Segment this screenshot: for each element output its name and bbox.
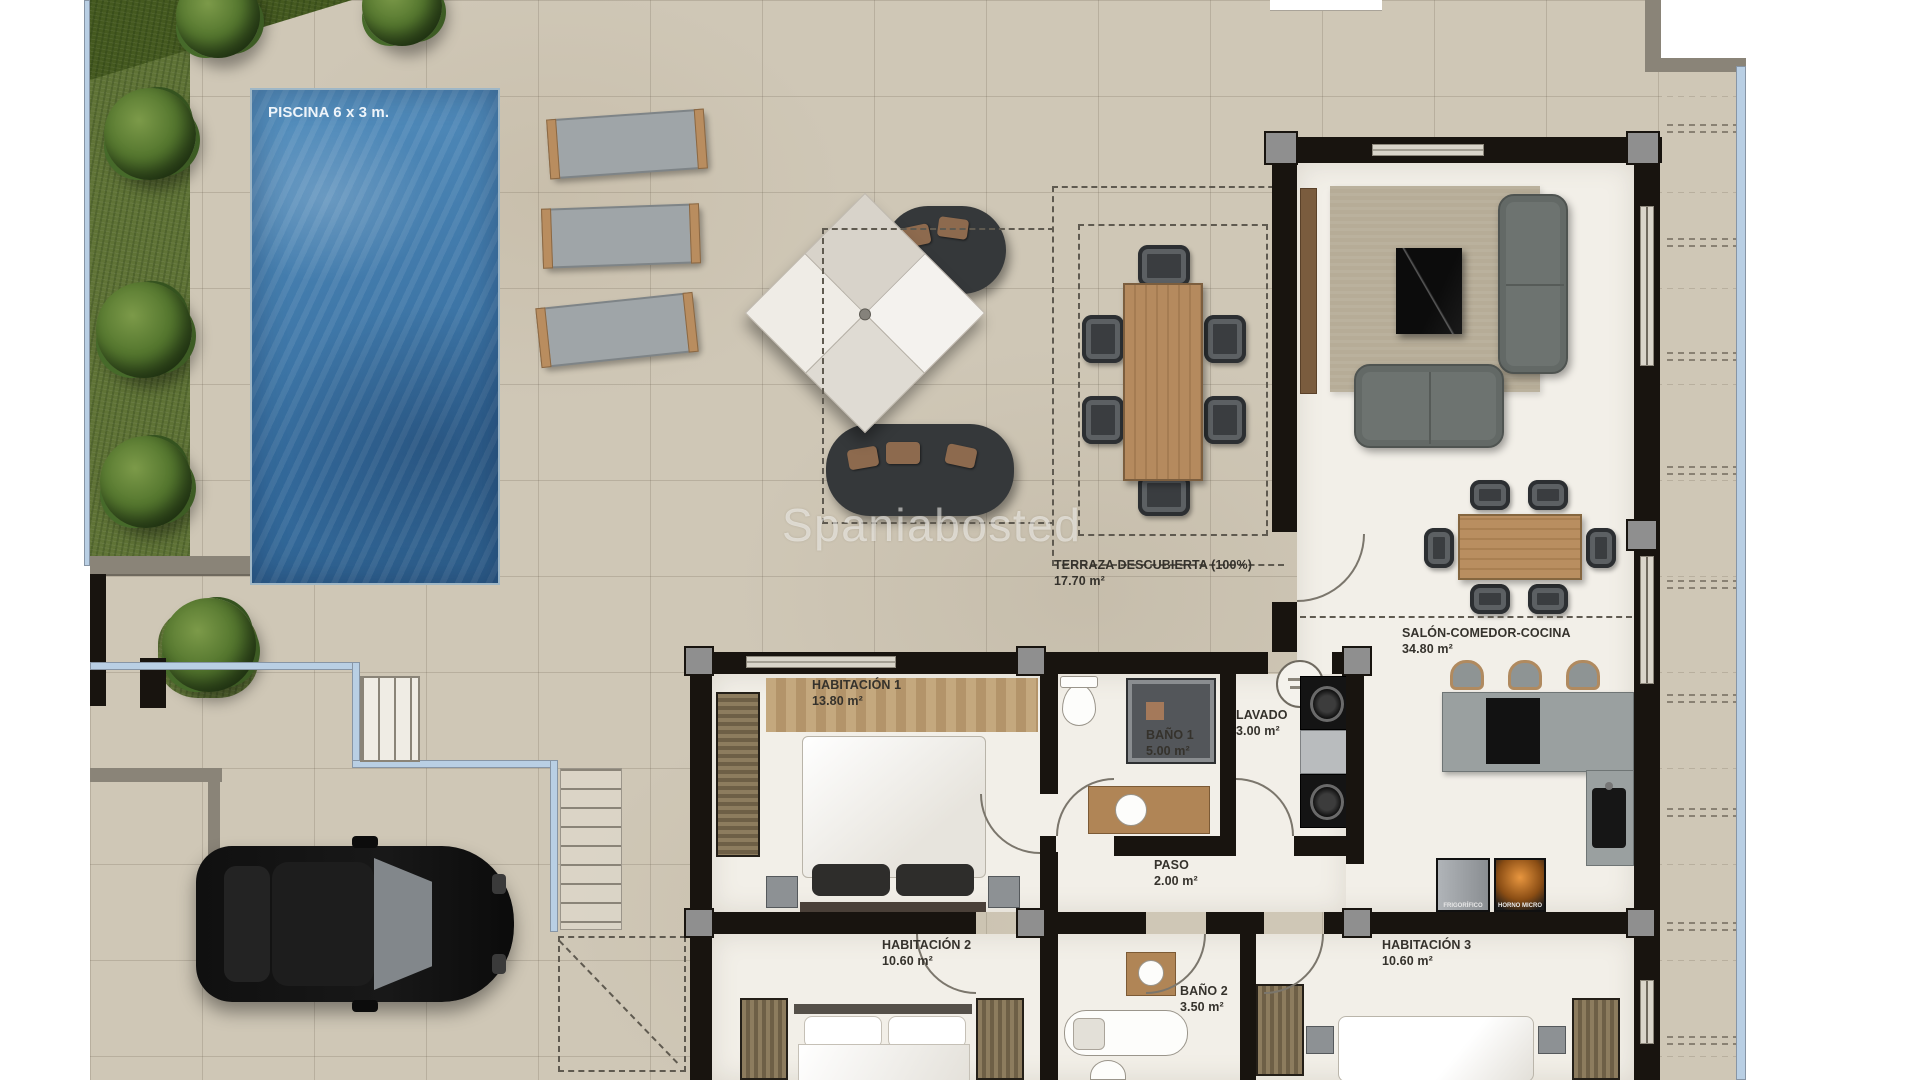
bathtub bbox=[1064, 1010, 1188, 1056]
bed bbox=[1338, 1016, 1534, 1080]
car-mirror bbox=[352, 1000, 378, 1012]
pillar bbox=[1016, 646, 1046, 676]
bed-pillow bbox=[812, 864, 890, 896]
wall-salon-left bbox=[1272, 137, 1297, 532]
wall-hab1-bath1 bbox=[1040, 852, 1058, 912]
boundary-wall bbox=[1645, 0, 1661, 62]
room-label-salon: SALÓN-COMEDOR-COCINA34.80 m² bbox=[1402, 626, 1571, 657]
sofa bbox=[1498, 194, 1568, 374]
bed-headboard bbox=[800, 902, 986, 912]
page-margin bbox=[1661, 0, 1920, 58]
pillar bbox=[684, 908, 714, 938]
window bbox=[1640, 206, 1654, 366]
page-margin bbox=[1746, 58, 1920, 1080]
pillar bbox=[1626, 908, 1656, 938]
tv-console bbox=[1300, 188, 1317, 394]
car-mirror bbox=[352, 836, 378, 848]
nightstand bbox=[766, 876, 798, 908]
bed-duvet bbox=[798, 1044, 970, 1080]
bar-stool bbox=[1450, 660, 1484, 690]
car-windshield bbox=[374, 858, 432, 990]
oven-microwave: HORNO MICRO bbox=[1494, 858, 1546, 912]
balustrade bbox=[550, 760, 558, 932]
bed bbox=[794, 1004, 972, 1080]
dining-chair bbox=[1424, 528, 1454, 568]
pillar bbox=[1016, 908, 1046, 938]
tree bbox=[100, 436, 192, 528]
balustrade bbox=[90, 662, 358, 670]
room-label-bano2: BAÑO 23.50 m² bbox=[1180, 984, 1228, 1015]
washing-machine bbox=[1300, 676, 1348, 730]
car-roof bbox=[272, 862, 374, 986]
wardrobe bbox=[716, 692, 760, 857]
wall-bath1-bottom bbox=[1114, 836, 1236, 856]
dining-chair bbox=[1470, 584, 1510, 614]
window bbox=[1640, 556, 1654, 684]
wall-bedrooms-band bbox=[1324, 912, 1660, 934]
window bbox=[1372, 144, 1484, 156]
room-label-hab3: HABITACIÓN 310.60 m² bbox=[1382, 938, 1471, 969]
tree bbox=[104, 88, 196, 180]
plot-boundary-line bbox=[84, 0, 90, 566]
wall-hab2-bath2 bbox=[1040, 934, 1058, 1080]
tree bbox=[96, 282, 192, 378]
pillar bbox=[1264, 131, 1298, 165]
garden-wall-stub bbox=[90, 574, 106, 706]
toilet bbox=[1062, 684, 1096, 726]
sun-lounger bbox=[546, 109, 708, 180]
stairs bbox=[560, 768, 622, 930]
fridge: FRIGORÍFICO bbox=[1436, 858, 1490, 912]
pillar bbox=[1626, 519, 1658, 551]
car-rear-window bbox=[224, 866, 270, 982]
room-label-terraza: TERRAZA DESCUBIERTA (100%)17.70 m² bbox=[1054, 558, 1252, 589]
room-label-hab1: HABITACIÓN 113.80 m² bbox=[812, 678, 901, 709]
sun-lounger bbox=[541, 203, 701, 268]
outdoor-chair bbox=[1082, 315, 1124, 363]
dryer bbox=[1300, 774, 1348, 828]
pillar bbox=[1342, 908, 1372, 938]
kitchen-sink bbox=[1592, 788, 1626, 848]
garden-wall bbox=[90, 768, 222, 782]
pillar bbox=[1626, 131, 1660, 165]
window bbox=[1640, 980, 1654, 1044]
cooktop bbox=[1486, 698, 1540, 764]
wall-bedrooms-band bbox=[690, 912, 976, 934]
oven-label: HORNO MICRO bbox=[1496, 903, 1544, 909]
room-label-hab2: HABITACIÓN 210.60 m² bbox=[882, 938, 971, 969]
room-label-lavado: LAVADO3.00 m² bbox=[1236, 708, 1288, 739]
side-terrace-joints bbox=[1662, 76, 1738, 1080]
wardrobe bbox=[1572, 998, 1620, 1080]
window bbox=[746, 656, 896, 668]
loveseat bbox=[1354, 364, 1504, 448]
bed bbox=[800, 736, 986, 912]
wall-west bbox=[690, 652, 712, 1080]
laundry-shelf bbox=[1300, 730, 1348, 774]
wardrobe bbox=[740, 998, 788, 1080]
nightstand bbox=[1538, 1026, 1566, 1054]
balustrade bbox=[352, 662, 360, 768]
bed-duvet bbox=[802, 736, 986, 878]
wall-bedrooms-band bbox=[1206, 912, 1264, 934]
page-margin bbox=[0, 0, 84, 1080]
dining-chair bbox=[1470, 480, 1510, 510]
toilet-tank bbox=[1060, 676, 1098, 688]
nightstand bbox=[988, 876, 1020, 908]
tree bbox=[162, 598, 256, 692]
car-headlight bbox=[492, 954, 506, 974]
pillar bbox=[1342, 646, 1372, 676]
coffee-table bbox=[1396, 248, 1462, 334]
outdoor-chair bbox=[1082, 396, 1124, 444]
wall-salon-left-stub bbox=[1272, 602, 1297, 652]
dining-table bbox=[1458, 514, 1582, 580]
watermark: Spaniabosted bbox=[782, 498, 1081, 552]
outdoor-dining-table bbox=[1123, 283, 1203, 481]
car bbox=[196, 846, 514, 1002]
outdoor-chair bbox=[1138, 245, 1190, 287]
bar-stool bbox=[1508, 660, 1542, 690]
salon-zone-dashed-line bbox=[1300, 616, 1632, 618]
outdoor-chair bbox=[1204, 396, 1246, 444]
pool-label: PISCINA 6 x 3 m. bbox=[268, 104, 389, 123]
bar-stool bbox=[1566, 660, 1600, 690]
wall-bedrooms-band bbox=[1036, 912, 1146, 934]
wall-bath1-bottom bbox=[1040, 836, 1056, 856]
boundary-wall bbox=[1645, 58, 1746, 72]
dining-chair bbox=[1586, 528, 1616, 568]
pillar bbox=[684, 646, 714, 676]
bed-headboard bbox=[794, 1004, 972, 1014]
washbasin bbox=[1115, 794, 1147, 826]
plan-edge-step bbox=[1270, 0, 1382, 11]
bedroom-rug bbox=[766, 678, 1038, 732]
bed-pillow bbox=[896, 864, 974, 896]
nightstand bbox=[1306, 1026, 1334, 1054]
wardrobe bbox=[976, 998, 1024, 1080]
fridge-label: FRIGORÍFICO bbox=[1438, 903, 1488, 909]
wall-lavado-salon bbox=[1346, 652, 1364, 864]
outdoor-chair bbox=[1204, 315, 1246, 363]
wall-bath2-hab3 bbox=[1240, 934, 1256, 1080]
car-headlight bbox=[492, 874, 506, 894]
wardrobe bbox=[1256, 984, 1304, 1076]
floor-plan: PISCINA 6 x 3 m. bbox=[0, 0, 1920, 1080]
dining-chair bbox=[1528, 584, 1568, 614]
plot-boundary-line bbox=[1736, 66, 1746, 1080]
wall-hab1-bath1 bbox=[1040, 674, 1058, 794]
room-label-bano1: BAÑO 15.00 m² bbox=[1146, 728, 1194, 759]
wall-lavado-bottom bbox=[1294, 836, 1364, 856]
dining-chair bbox=[1528, 480, 1568, 510]
swimming-pool: PISCINA 6 x 3 m. bbox=[250, 88, 500, 585]
room-label-paso: PASO2.00 m² bbox=[1154, 858, 1198, 889]
terrace-dashed-outline bbox=[822, 228, 1054, 524]
stairs bbox=[360, 676, 420, 762]
wall-bath1-lavado bbox=[1220, 674, 1236, 836]
